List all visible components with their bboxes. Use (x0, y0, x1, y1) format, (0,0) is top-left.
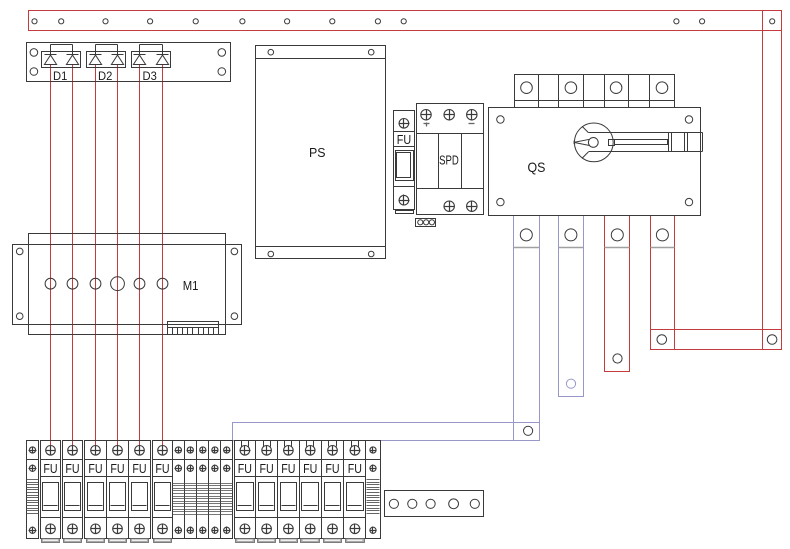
svg-text:FU: FU (348, 461, 362, 476)
svg-text:FU: FU (65, 461, 79, 476)
svg-text:D1: D1 (53, 69, 67, 83)
svg-text:FU: FU (281, 461, 295, 476)
svg-text:FU: FU (88, 461, 102, 476)
svg-text:PS: PS (309, 145, 326, 160)
svg-text:FU: FU (155, 461, 169, 476)
svg-text:SPD: SPD (439, 153, 459, 168)
svg-text:D3: D3 (143, 69, 157, 83)
svg-text:FU: FU (325, 461, 339, 476)
svg-text:FU: FU (303, 461, 317, 476)
svg-text:FU: FU (260, 461, 274, 476)
svg-text:FU: FU (132, 461, 146, 476)
svg-text:QS: QS (528, 159, 546, 175)
svg-text:FU: FU (238, 461, 252, 476)
svg-text:FU: FU (43, 461, 57, 476)
svg-text:D2: D2 (98, 69, 112, 83)
svg-text:FU: FU (397, 133, 411, 147)
svg-text:M1: M1 (183, 278, 199, 293)
svg-text:FU: FU (110, 461, 124, 476)
